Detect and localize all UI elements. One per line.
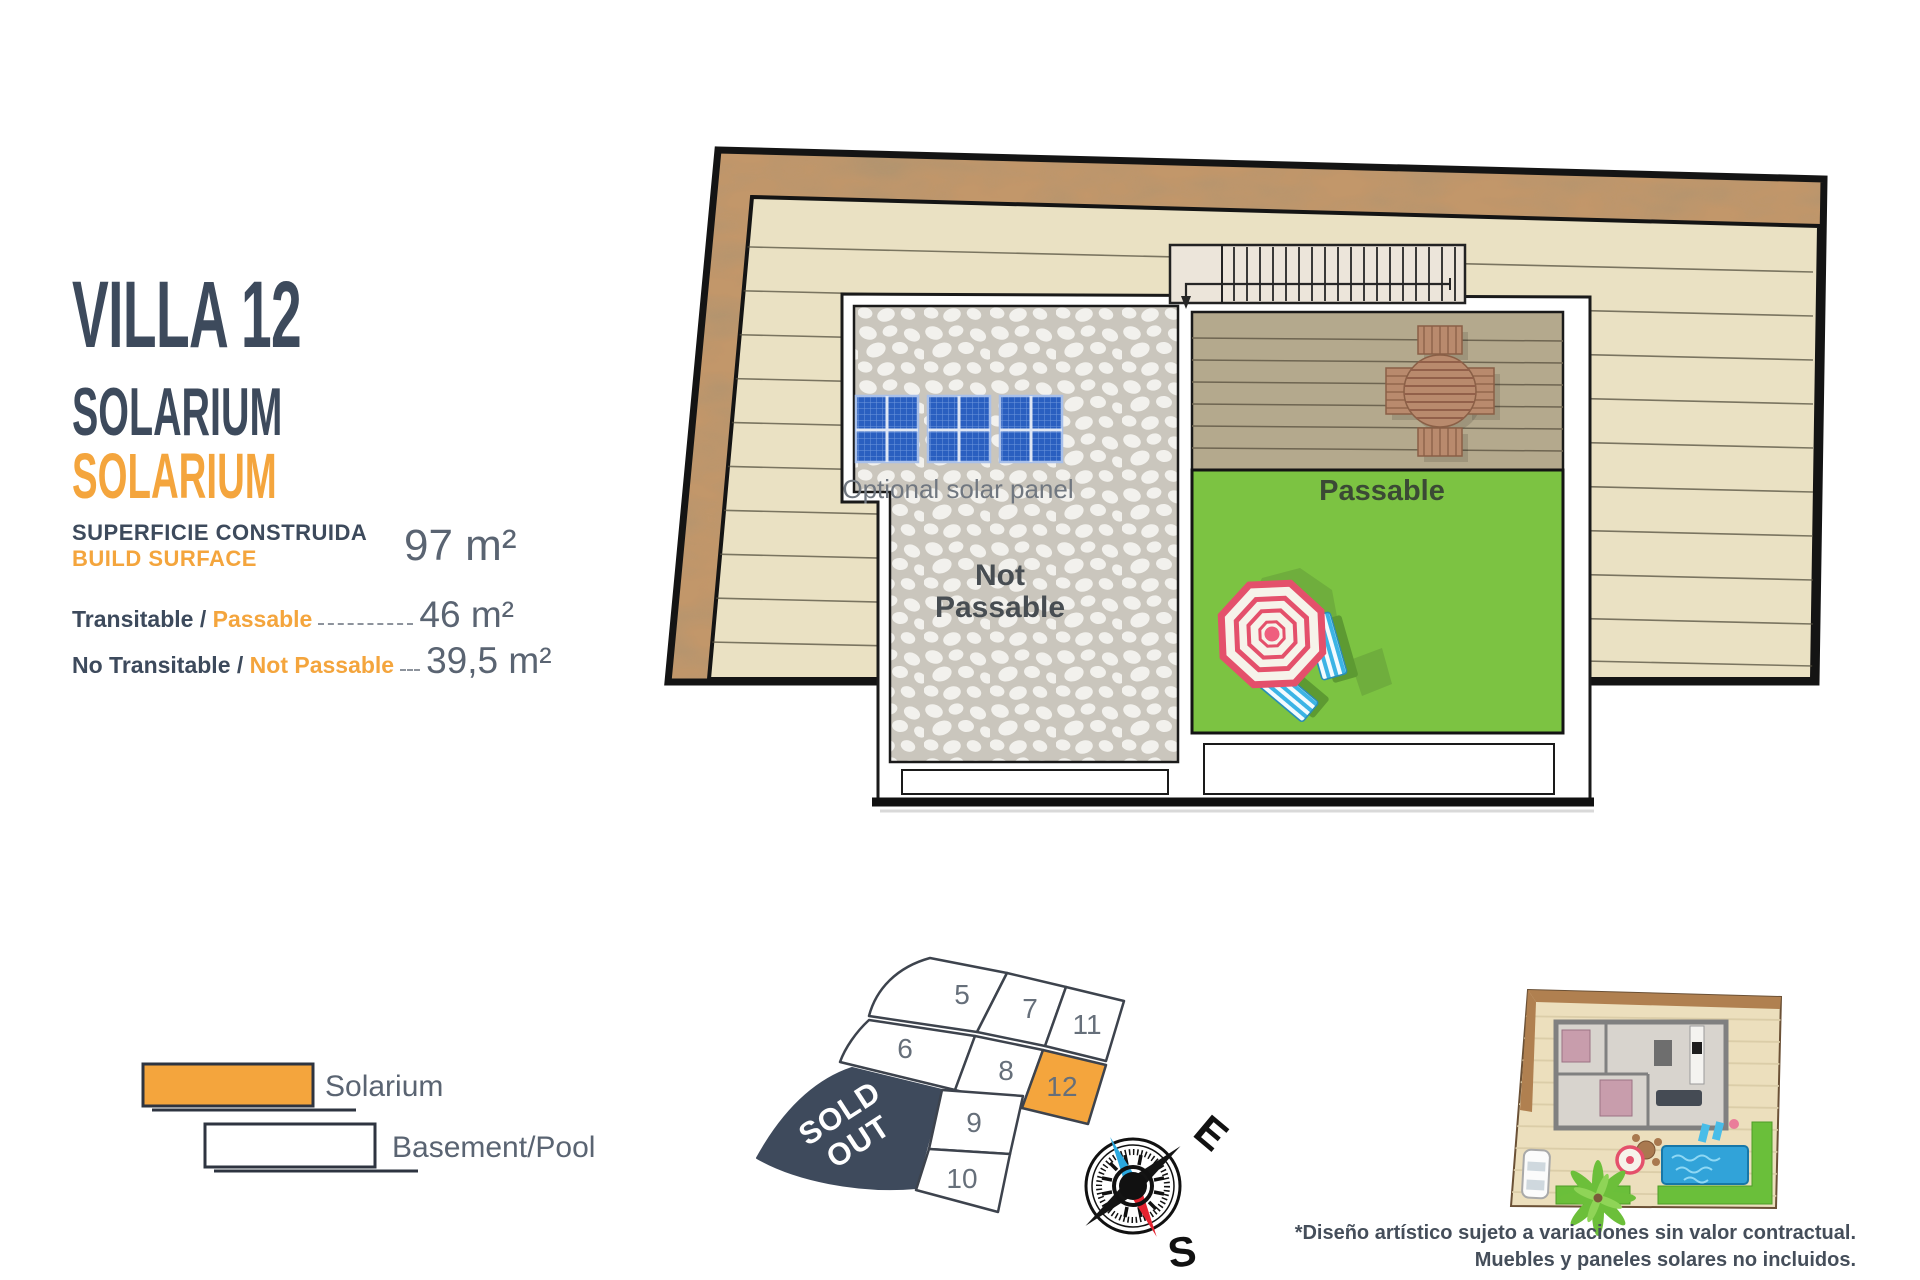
legend-solarium-label: Solarium bbox=[325, 1070, 443, 1103]
solar-panel-label: Optional solar panel bbox=[842, 474, 1073, 504]
apron-ledge bbox=[1204, 744, 1554, 794]
legend-solarium-swatch bbox=[143, 1064, 313, 1106]
mini-sofa bbox=[1656, 1090, 1702, 1106]
solar-panel-icon bbox=[1000, 396, 1062, 462]
solar-panel-icon bbox=[928, 396, 990, 462]
brochure-page: VILLA 12 SOLARIUM SOLARIUM SUPERFICIE CO… bbox=[0, 0, 1920, 1280]
plot-11-label: 11 bbox=[1072, 1009, 1101, 1040]
solar-panels bbox=[856, 396, 1062, 462]
compass-icon bbox=[1080, 1134, 1185, 1240]
plot-5-label: 5 bbox=[954, 979, 970, 1010]
plot-8-label: 8 bbox=[998, 1055, 1014, 1086]
plot-7-label: 7 bbox=[1022, 993, 1038, 1024]
mini-bed bbox=[1600, 1080, 1632, 1116]
legend-basement-swatch bbox=[205, 1124, 375, 1167]
not-passable-label-line2: Passable bbox=[935, 591, 1065, 624]
disclaimer-line2: Muebles y paneles solares no incluidos. bbox=[1295, 1247, 1856, 1274]
plot-9-label: 9 bbox=[966, 1107, 982, 1138]
pool-icon bbox=[1662, 1146, 1748, 1184]
passable-label: Passable bbox=[1319, 475, 1445, 507]
disclaimer: *Diseño artístico sujeto a variaciones s… bbox=[1295, 1220, 1856, 1274]
mini-stove bbox=[1692, 1042, 1702, 1054]
floor-plan: Optional solar panel Not Passable bbox=[668, 150, 1824, 811]
plan-canvas: Optional solar panel Not Passable bbox=[0, 0, 1920, 1280]
apron-ledge bbox=[902, 770, 1168, 794]
plot-6-label: 6 bbox=[897, 1033, 913, 1064]
villa-overview-thumbnail bbox=[1510, 990, 1782, 1236]
mini-house bbox=[1556, 1022, 1726, 1128]
stairs-icon bbox=[1170, 245, 1465, 309]
legend: Solarium Basement/Pool bbox=[143, 1064, 595, 1171]
solar-panel-icon bbox=[856, 396, 918, 462]
compass-east-label: E bbox=[1185, 1106, 1237, 1160]
upper-deck bbox=[1192, 312, 1563, 470]
not-passable-area bbox=[854, 306, 1178, 762]
plot-10-label: 10 bbox=[946, 1163, 977, 1194]
compass-south-label: S bbox=[1165, 1226, 1199, 1276]
disclaimer-line1: *Diseño artístico sujeto a variaciones s… bbox=[1295, 1220, 1856, 1247]
car-icon bbox=[1522, 1149, 1550, 1198]
mini-dining-table bbox=[1654, 1040, 1672, 1066]
legend-basement-label: Basement/Pool bbox=[392, 1131, 595, 1164]
plot-12-label: 12 bbox=[1046, 1071, 1077, 1102]
not-passable-label-line1: Not bbox=[975, 559, 1025, 592]
mini-bed bbox=[1562, 1030, 1590, 1062]
mini-kitchen bbox=[1690, 1026, 1704, 1084]
site-plan: 5 7 11 6 8 12 9 10 SOLD OUT bbox=[757, 958, 1237, 1277]
